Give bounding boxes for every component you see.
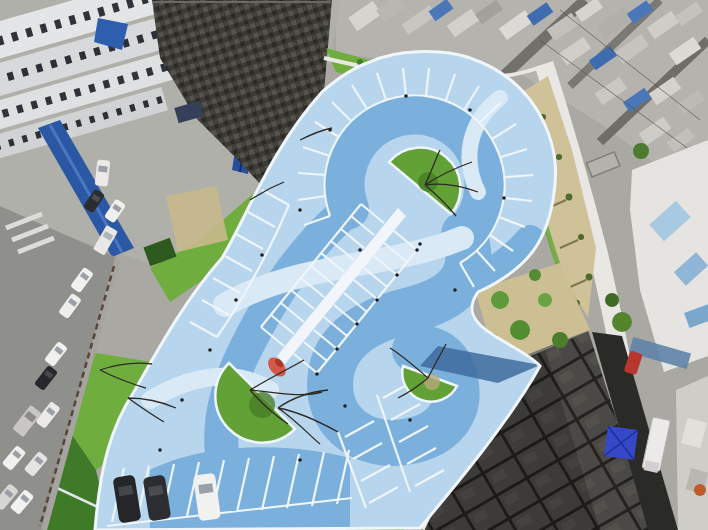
orange-object [694, 484, 706, 496]
corner-buildings [676, 376, 708, 530]
tree-clump [633, 143, 649, 159]
tree-clump [612, 312, 632, 332]
tree-clump [605, 293, 619, 307]
aerial-photo [0, 0, 708, 530]
aerial-photo-canvas [0, 0, 708, 530]
